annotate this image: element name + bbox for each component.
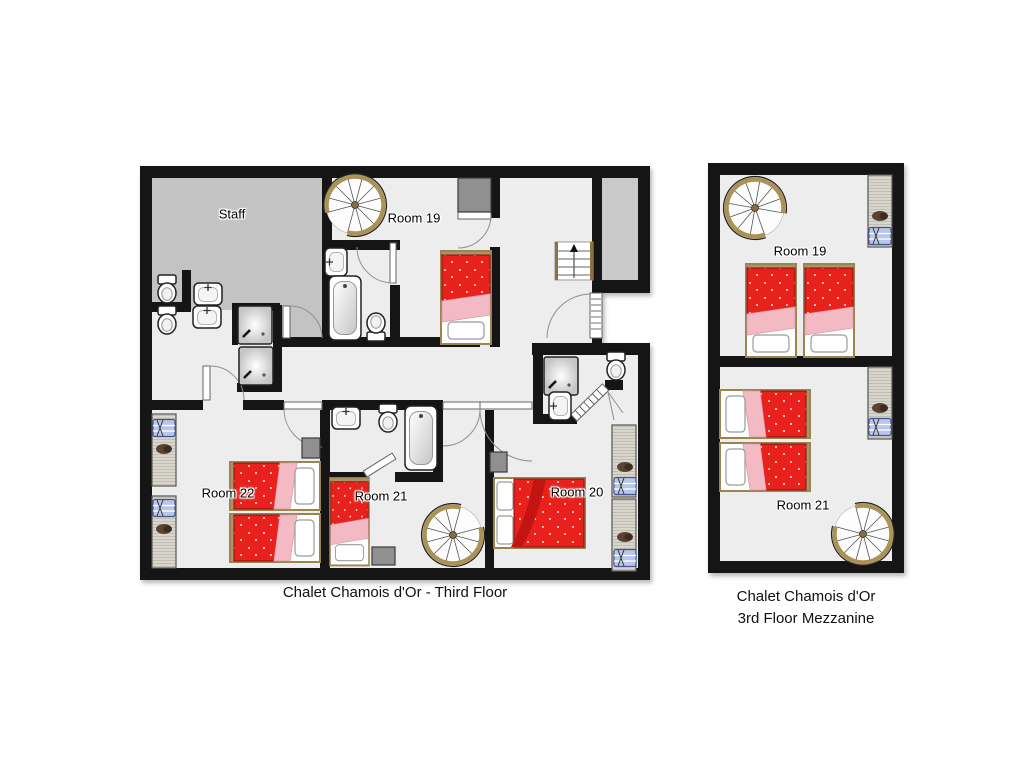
luggage-rack-icon xyxy=(869,228,891,245)
sink-icon xyxy=(325,248,347,276)
luggage-rack-icon xyxy=(869,419,891,436)
cabinet-icon xyxy=(302,438,320,458)
room-label-mezz-room21: Room 21 xyxy=(777,498,830,513)
slipper-icon xyxy=(156,524,172,534)
sink-icon xyxy=(193,306,221,328)
single-bed-icon xyxy=(230,514,320,562)
third-floor-drawing xyxy=(140,166,650,580)
staircase-icon xyxy=(555,242,593,280)
room-label-room21: Room 21 xyxy=(355,489,408,504)
room-label-mezz-room19: Room 19 xyxy=(774,244,827,259)
bathtub-icon xyxy=(329,276,361,340)
slipper-icon xyxy=(156,444,172,454)
sink-icon xyxy=(549,392,571,420)
luggage-rack-icon xyxy=(153,500,175,517)
toilet-icon xyxy=(607,352,625,380)
luggage-rack-icon xyxy=(614,550,636,567)
room-label-room22: Room 22 xyxy=(202,486,255,501)
single-bed-icon xyxy=(804,264,854,357)
single-bed-icon xyxy=(746,264,796,357)
toilet-icon xyxy=(158,275,176,303)
single-bed-icon xyxy=(720,390,810,438)
luggage-rack-icon xyxy=(153,420,175,437)
stair-void-area xyxy=(602,178,638,280)
staff-room-area xyxy=(152,178,322,310)
slipper-icon xyxy=(617,462,633,472)
toilet-icon xyxy=(367,313,385,341)
mezzanine-caption: Chalet Chamois d'Or 3rd Floor Mezzanine xyxy=(688,586,924,630)
room-label-staff: Staff xyxy=(219,207,246,222)
mezzanine-caption-line2: 3rd Floor Mezzanine xyxy=(688,608,924,630)
toilet-icon xyxy=(158,306,176,334)
cabinet-icon xyxy=(490,452,507,472)
slipper-icon xyxy=(872,403,888,413)
shower-icon xyxy=(544,357,578,395)
sink-icon xyxy=(332,407,360,429)
floorplan-page: Staff Room 19 Room 22 Room 21 Room 20 xyxy=(0,0,1021,768)
floorplan-mezzanine: Room 19 Room 21 xyxy=(708,163,904,573)
cabinet-icon xyxy=(372,547,395,565)
room-label-room19: Room 19 xyxy=(388,211,441,226)
room-label-room20: Room 20 xyxy=(551,485,604,500)
shower-icon xyxy=(238,306,272,344)
mezzanine-caption-line1: Chalet Chamois d'Or xyxy=(688,586,924,608)
shower-icon xyxy=(239,347,273,385)
luggage-rack-icon xyxy=(614,478,636,495)
bathtub-icon xyxy=(405,406,437,470)
cabinet-icon xyxy=(458,178,491,212)
sink-icon xyxy=(194,283,222,305)
single-bed-icon xyxy=(720,443,810,491)
toilet-icon xyxy=(379,404,397,432)
floorplan-third-floor: Staff Room 19 Room 22 Room 21 Room 20 xyxy=(140,166,650,580)
single-bed-icon xyxy=(441,251,491,344)
slipper-icon xyxy=(617,532,633,542)
slipper-icon xyxy=(872,211,888,221)
third-floor-caption: Chalet Chamois d'Or - Third Floor xyxy=(140,582,650,604)
